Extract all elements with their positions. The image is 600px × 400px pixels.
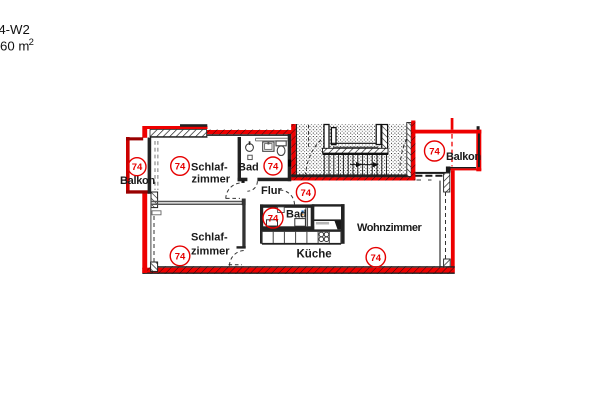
svg-text:Wohnzimmer: Wohnzimmer xyxy=(357,222,423,234)
svg-text:Flur: Flur xyxy=(261,185,282,197)
svg-text:Schlaf-: Schlaf- xyxy=(191,161,228,173)
svg-text:60 m: 60 m xyxy=(0,39,29,54)
svg-text:74: 74 xyxy=(268,214,279,225)
svg-text:74-W2: 74-W2 xyxy=(0,22,30,37)
svg-text:2: 2 xyxy=(29,37,34,48)
svg-text:Küche: Küche xyxy=(297,249,332,261)
svg-text:zimmer: zimmer xyxy=(192,174,231,186)
svg-text:74: 74 xyxy=(371,253,382,264)
svg-text:Schlaf-: Schlaf- xyxy=(191,232,228,244)
svg-text:74: 74 xyxy=(268,162,279,173)
svg-text:zimmer: zimmer xyxy=(191,246,230,258)
svg-text:Balkon: Balkon xyxy=(120,175,155,187)
svg-text:74: 74 xyxy=(175,162,186,173)
svg-text:74: 74 xyxy=(301,188,312,199)
svg-text:Bad: Bad xyxy=(286,209,307,221)
svg-text:Balkon: Balkon xyxy=(446,151,481,163)
svg-text:74: 74 xyxy=(429,147,440,158)
svg-text:74: 74 xyxy=(175,251,186,262)
svg-text:Bad: Bad xyxy=(238,161,259,173)
svg-text:74: 74 xyxy=(132,162,143,173)
